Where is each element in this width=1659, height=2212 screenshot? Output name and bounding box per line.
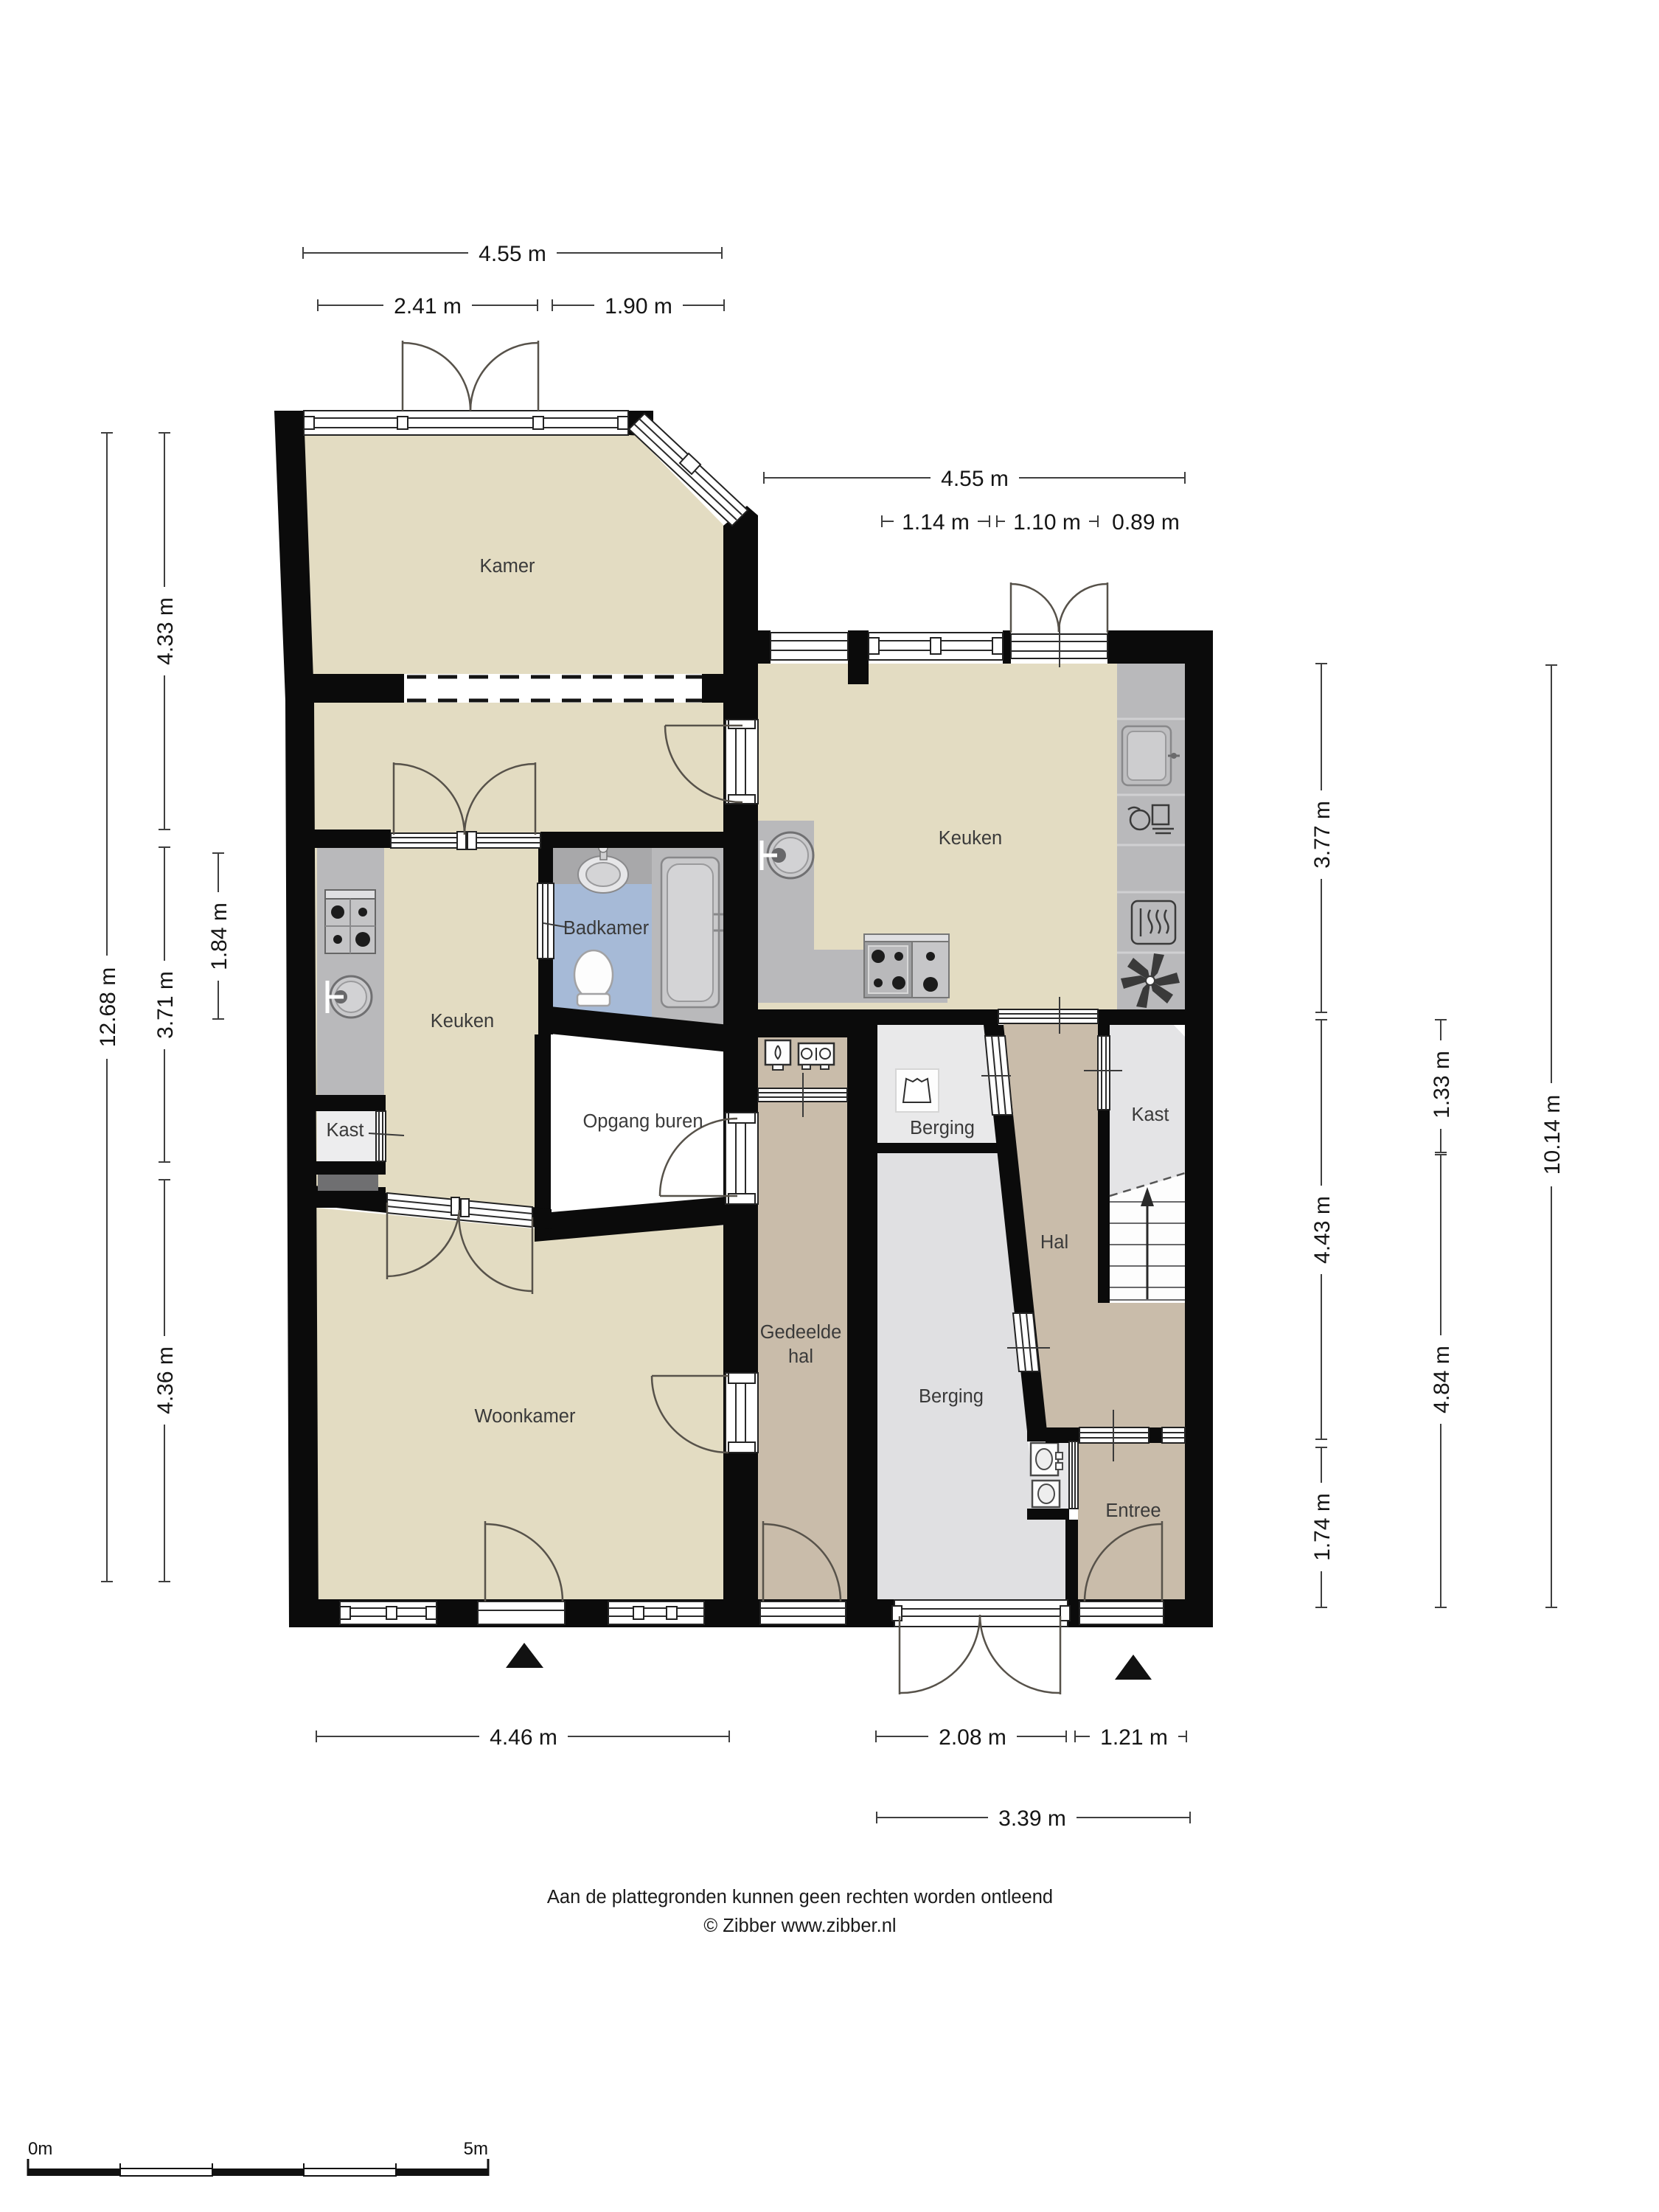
svg-text:Kast: Kast — [1131, 1105, 1169, 1125]
svg-text:4.84 m: 4.84 m — [1430, 1346, 1454, 1413]
svg-text:1.33 m: 1.33 m — [1430, 1051, 1454, 1119]
svg-text:1.21 m: 1.21 m — [1100, 1725, 1168, 1750]
svg-text:1.10 m: 1.10 m — [1013, 510, 1081, 535]
svg-text:1.14 m: 1.14 m — [902, 510, 970, 535]
svg-text:10.14 m: 10.14 m — [1540, 1095, 1565, 1175]
svg-text:2.08 m: 2.08 m — [939, 1725, 1006, 1750]
svg-text:4.55 m: 4.55 m — [941, 467, 1009, 491]
svg-text:3.71 m: 3.71 m — [153, 971, 178, 1039]
svg-text:Woonkamer: Woonkamer — [474, 1406, 576, 1427]
svg-text:12.68 m: 12.68 m — [96, 967, 120, 1047]
svg-text:Entree: Entree — [1105, 1500, 1161, 1521]
svg-text:Kast: Kast — [326, 1120, 364, 1141]
svg-text:Berging: Berging — [919, 1386, 984, 1407]
svg-text:hal: hal — [788, 1346, 813, 1367]
svg-text:5m: 5m — [464, 2139, 488, 2159]
svg-text:1.90 m: 1.90 m — [605, 294, 672, 319]
svg-text:4.46 m: 4.46 m — [490, 1725, 557, 1750]
svg-text:0m: 0m — [28, 2139, 52, 2159]
svg-text:4.33 m: 4.33 m — [153, 597, 178, 665]
svg-text:1.74 m: 1.74 m — [1310, 1493, 1335, 1561]
svg-text:1.84 m: 1.84 m — [207, 902, 232, 970]
svg-text:Hal: Hal — [1040, 1232, 1068, 1253]
svg-text:Keuken: Keuken — [939, 828, 1003, 849]
svg-text:2.41 m: 2.41 m — [394, 294, 462, 319]
svg-text:3.39 m: 3.39 m — [998, 1806, 1066, 1831]
svg-text:Keuken: Keuken — [431, 1011, 495, 1032]
svg-text:3.77 m: 3.77 m — [1310, 801, 1335, 869]
svg-text:© Zibber www.zibber.nl: © Zibber www.zibber.nl — [703, 1916, 896, 1936]
svg-text:Badkamer: Badkamer — [563, 918, 650, 939]
svg-text:4.36 m: 4.36 m — [153, 1346, 178, 1414]
svg-text:Gedeelde: Gedeelde — [760, 1322, 842, 1343]
svg-text:Kamer: Kamer — [479, 556, 535, 577]
svg-text:Berging: Berging — [910, 1118, 975, 1138]
svg-text:4.55 m: 4.55 m — [479, 242, 546, 266]
svg-text:4.43 m: 4.43 m — [1310, 1196, 1335, 1264]
svg-text:0.89 m: 0.89 m — [1112, 510, 1180, 535]
svg-text:Aan de plattegronden kunnen ge: Aan de plattegronden kunnen geen rechten… — [547, 1887, 1053, 1907]
svg-text:Opgang buren: Opgang buren — [582, 1111, 703, 1132]
